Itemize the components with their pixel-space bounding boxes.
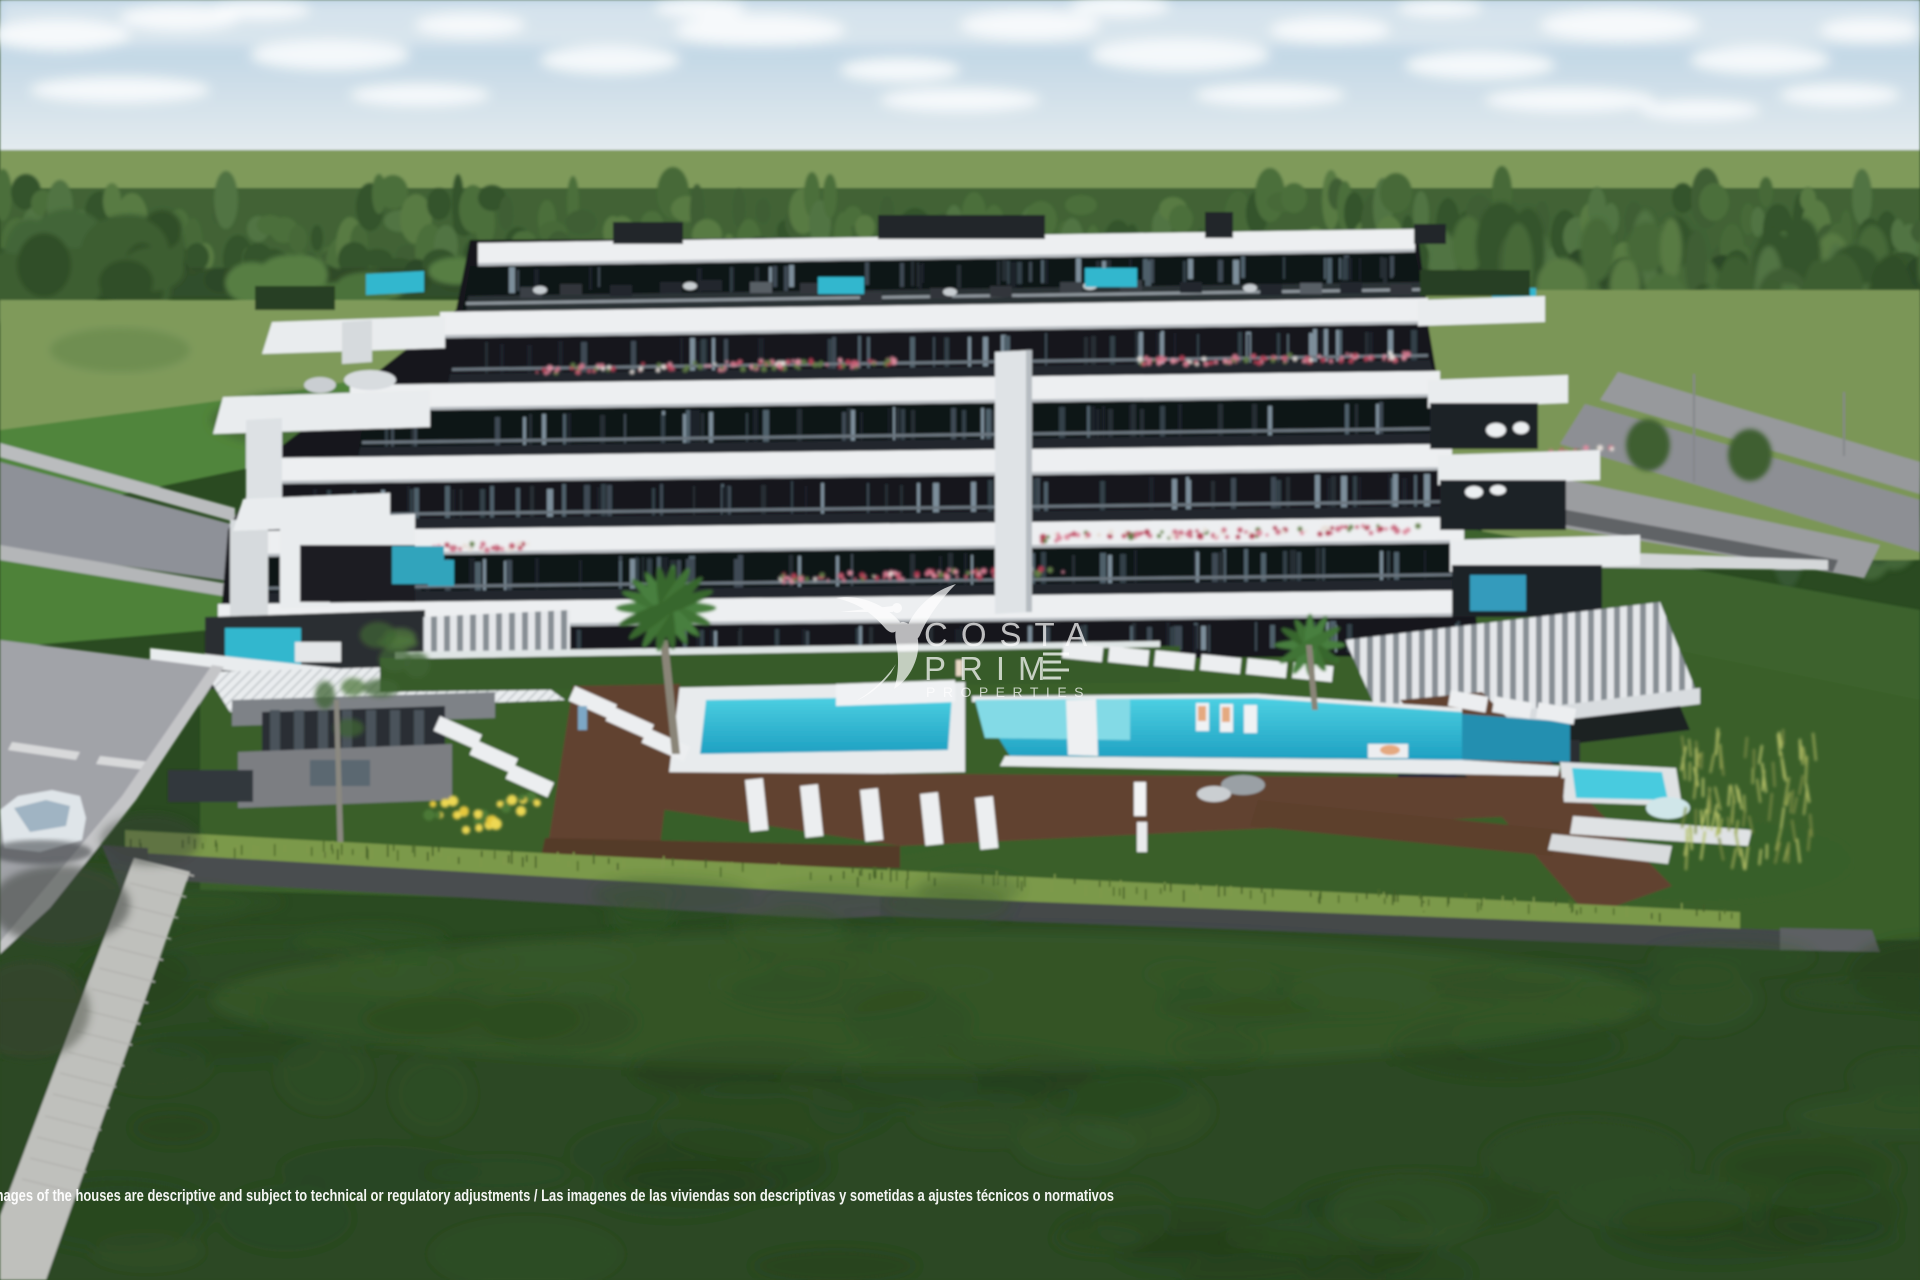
svg-text:mages of the houses are descri: mages of the houses are descriptive and … [0,1186,1114,1205]
svg-text:PROPERTIES: PROPERTIES [926,684,1091,700]
svg-text:PRIM: PRIM [924,650,1059,687]
svg-text:COSTA: COSTA [924,616,1100,653]
